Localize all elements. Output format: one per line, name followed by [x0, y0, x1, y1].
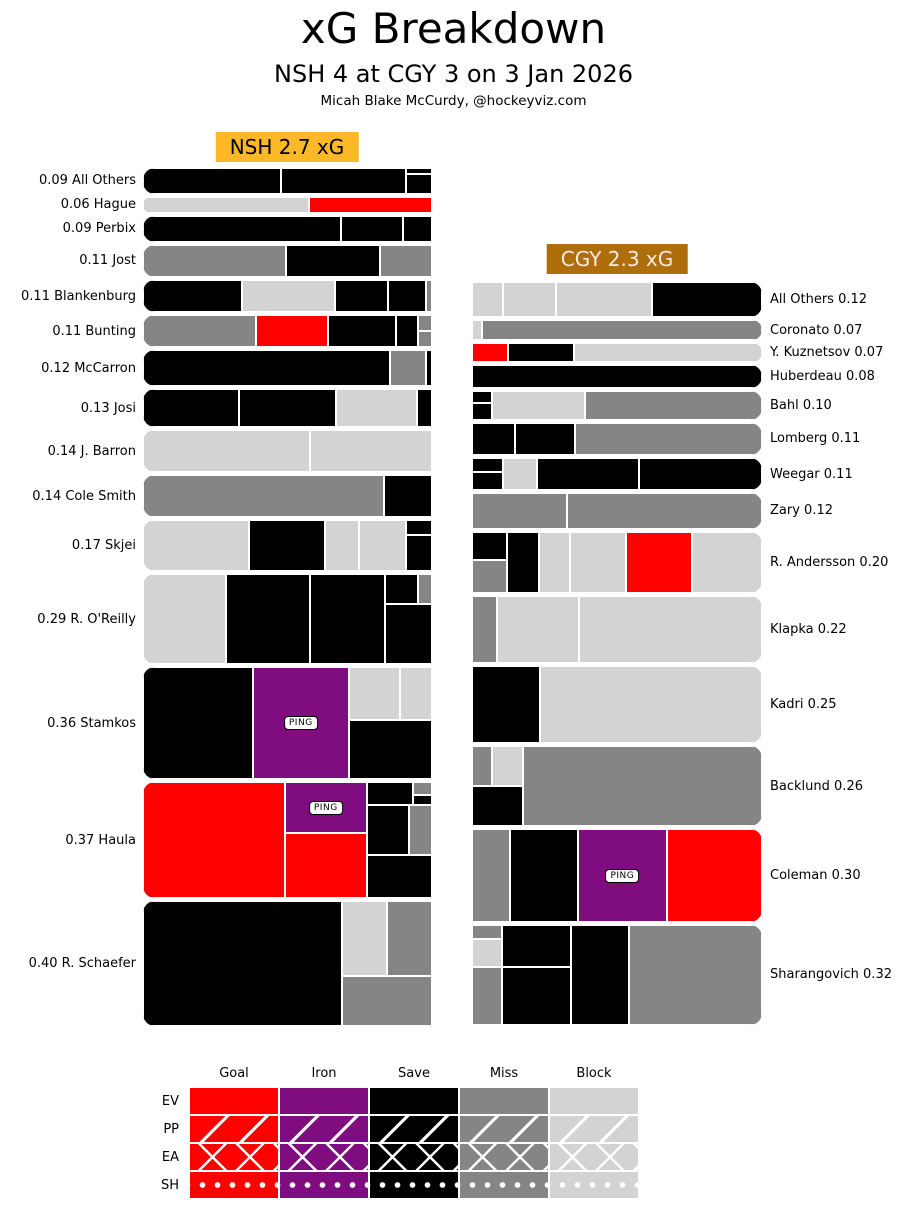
- player-shot-bar: [143, 315, 432, 347]
- shot-cell-save: [406, 520, 432, 535]
- player-label: 0.09 All Others: [0, 168, 136, 194]
- player-label: 0.09 Perbix: [0, 216, 136, 242]
- legend-column-label-miss: Miss: [460, 1060, 548, 1086]
- shot-cell-save: [571, 925, 629, 1024]
- player-row-haula: 0.37 HaulaPING: [143, 782, 432, 897]
- shot-cell-save: [384, 475, 432, 517]
- shot-cell-save: [385, 574, 418, 604]
- legend-swatch-ea-iron: [280, 1144, 368, 1170]
- player-row-cole-smith: 0.14 Cole Smith: [143, 475, 432, 517]
- legend-swatch-ev-iron: [280, 1088, 368, 1114]
- player-shot-bar: [472, 493, 762, 528]
- shot-cell-save: [508, 343, 573, 362]
- legend-swatch-ev-save: [370, 1088, 458, 1114]
- player-row-klapka: Klapka 0.22: [472, 596, 762, 663]
- legend-swatch-pp-block: [550, 1116, 638, 1142]
- legend-column-label-iron: Iron: [280, 1060, 368, 1086]
- shot-cell-goal: [472, 343, 508, 362]
- legend-swatch-pp-goal: [190, 1116, 278, 1142]
- shot-cell-block: [574, 343, 763, 362]
- player-row-bunting: 0.11 Bunting: [143, 315, 432, 347]
- player-label: Sharangovich 0.32: [770, 925, 907, 1024]
- player-row-r-andersson: R. Andersson 0.20: [472, 532, 762, 593]
- shot-cell-save: [281, 168, 406, 194]
- legend-swatch-ea-goal: [190, 1144, 278, 1170]
- player-row-j-barron: 0.14 J. Barron: [143, 430, 432, 472]
- player-shot-bar: [143, 280, 432, 312]
- shot-cell-block: [472, 320, 482, 339]
- shot-cell-save: [367, 855, 432, 898]
- shot-cell-miss: [567, 493, 762, 528]
- player-shot-bar: [472, 596, 762, 663]
- shot-cell-goal: [667, 829, 762, 922]
- shot-cell-block: [143, 197, 309, 213]
- player-row-skjei: 0.17 Skjei: [143, 520, 432, 571]
- player-label: Y. Kuznetsov 0.07: [770, 343, 907, 362]
- shot-cell-miss: [143, 245, 286, 277]
- shot-cell-save: [507, 532, 539, 593]
- player-row-coleman: Coleman 0.30PING: [472, 829, 762, 922]
- player-label: Backlund 0.26: [770, 746, 907, 826]
- player-shot-bar: PING: [472, 829, 762, 922]
- legend-swatch-ev-block: [550, 1088, 638, 1114]
- player-label: Coleman 0.30: [770, 829, 907, 922]
- shot-cell-save: [143, 350, 390, 385]
- shot-cell-block: [570, 532, 626, 593]
- player-shot-bar: [143, 168, 432, 194]
- shot-cell-save: [502, 925, 570, 967]
- cgy-team-header: CGY 2.3 xG: [547, 244, 688, 274]
- author-credit: Micah Blake McCurdy, @hockeyviz.com: [0, 93, 907, 109]
- player-shot-bar: [472, 925, 762, 1024]
- player-shot-bar: [472, 320, 762, 339]
- page-title: xG Breakdown: [0, 4, 907, 53]
- shot-cell-miss: [472, 560, 507, 592]
- shot-cell-save: [406, 535, 432, 571]
- shot-cell-goal: [309, 197, 432, 213]
- shot-cell-save: [472, 391, 492, 403]
- player-row-blankenburg: 0.11 Blankenburg: [143, 280, 432, 312]
- shot-cell-block: [242, 280, 335, 312]
- legend-swatch-sh-iron: [280, 1172, 368, 1198]
- shot-cell-save: [472, 365, 762, 388]
- legend-corner-spacer: [140, 1060, 188, 1086]
- player-shot-bar: [143, 520, 432, 571]
- shot-cell-save: [310, 574, 385, 664]
- shot-cell-miss: [390, 350, 426, 385]
- shot-cell-block: [540, 666, 762, 743]
- legend-column-label-save: Save: [370, 1060, 458, 1086]
- shot-cell-goal: [626, 532, 692, 593]
- legend-swatch-sh-goal: [190, 1172, 278, 1198]
- legend-swatch-sh-save: [370, 1172, 458, 1198]
- shot-cell-save: [249, 520, 325, 571]
- player-shot-bar: PING: [143, 782, 432, 897]
- shot-cell-miss: [380, 245, 432, 277]
- player-shot-bar: [143, 430, 432, 472]
- player-row-backlund: Backlund 0.26: [472, 746, 762, 826]
- player-row-perbix: 0.09 Perbix: [143, 216, 432, 242]
- shot-cell-block: [359, 520, 406, 571]
- shot-cell-save: [385, 604, 432, 664]
- shot-cell-save: [472, 403, 492, 420]
- shot-cell-block: [325, 520, 359, 571]
- shot-cell-save: [388, 280, 426, 312]
- player-shot-bar: [472, 666, 762, 743]
- shot-cell-block: [692, 532, 762, 593]
- shot-cell-miss: [472, 925, 502, 939]
- shot-cell-miss: [472, 829, 510, 922]
- player-label: 0.29 R. O'Reilly: [0, 574, 136, 664]
- shot-cell-save: [472, 472, 503, 490]
- shot-cell-save: [143, 901, 342, 1026]
- xg-breakdown-figure: xG Breakdown NSH 4 at CGY 3 on 3 Jan 202…: [0, 0, 907, 1207]
- player-shot-bar: [143, 901, 432, 1026]
- shot-cell-save: [472, 532, 507, 561]
- shot-cell-save: [143, 216, 341, 242]
- shot-cell-block: [539, 532, 570, 593]
- ping-badge: PING: [284, 716, 318, 730]
- player-label: 0.17 Skjei: [0, 520, 136, 571]
- player-shot-bar: PING: [143, 667, 432, 779]
- shot-cell-block: [310, 430, 432, 472]
- player-label: Klapka 0.22: [770, 596, 907, 663]
- shot-cell-miss: [413, 782, 432, 795]
- shot-cell-save: [335, 280, 388, 312]
- player-shot-bar: [143, 574, 432, 664]
- player-label: 0.37 Haula: [0, 782, 136, 897]
- shot-cell-goal: [256, 315, 328, 347]
- player-label: 0.06 Hague: [0, 197, 136, 213]
- player-label: 0.36 Stamkos: [0, 667, 136, 779]
- legend-swatch-pp-miss: [460, 1116, 548, 1142]
- shot-cell-block: [497, 596, 579, 663]
- shot-cell-miss: [523, 746, 762, 826]
- legend-swatch-ev-miss: [460, 1088, 548, 1114]
- shot-cell-save: [472, 786, 523, 826]
- shot-cell-miss: [472, 493, 567, 528]
- player-shot-bar: [143, 350, 432, 385]
- legend-swatch-ea-miss: [460, 1144, 548, 1170]
- legend-row-label-sh: SH: [140, 1172, 188, 1198]
- player-label: 0.11 Jost: [0, 245, 136, 277]
- player-row-weegar: Weegar 0.11: [472, 458, 762, 490]
- shot-cell-iron: PING: [253, 667, 349, 779]
- shot-cell-block: [492, 746, 522, 786]
- shot-cell-save: [472, 666, 540, 743]
- player-row-bahl: Bahl 0.10: [472, 391, 762, 420]
- player-shot-bar: [472, 391, 762, 420]
- shot-cell-save: [417, 389, 432, 428]
- legend-row-label-ea: EA: [140, 1144, 188, 1170]
- shot-cell-save: [639, 458, 762, 490]
- shot-cell-block: [400, 667, 432, 720]
- shot-cell-miss: [418, 574, 432, 604]
- shot-cell-block: [143, 574, 226, 664]
- player-label: Huberdeau 0.08: [770, 365, 907, 388]
- player-row-y-kuznetsov: Y. Kuznetsov 0.07: [472, 343, 762, 362]
- shot-cell-block: [472, 282, 503, 317]
- player-label: Coronato 0.07: [770, 320, 907, 339]
- player-label: 0.14 Cole Smith: [0, 475, 136, 517]
- shot-cell-save: [143, 389, 239, 428]
- shot-cell-save: [652, 282, 762, 317]
- shot-cell-miss: [472, 596, 497, 663]
- shot-cell-block: [342, 901, 387, 976]
- shot-cell-miss: [629, 925, 762, 1024]
- player-label: R. Andersson 0.20: [770, 532, 907, 593]
- player-shot-bar: [472, 746, 762, 826]
- shot-cell-block: [349, 667, 400, 720]
- legend-row-label-ev: EV: [140, 1088, 188, 1114]
- player-row-hague: 0.06 Hague: [143, 197, 432, 213]
- shot-cell-iron: PING: [578, 829, 667, 922]
- shot-cell-block: [579, 596, 762, 663]
- shot-cell-save: [472, 458, 503, 472]
- shot-cell-miss: [426, 280, 432, 312]
- shot-cell-save: [286, 245, 380, 277]
- legend-swatch-pp-iron: [280, 1116, 368, 1142]
- shot-cell-iron: PING: [285, 782, 367, 833]
- shot-cell-block: [492, 391, 585, 420]
- shot-cell-save: [510, 829, 578, 922]
- player-shot-bar: [143, 245, 432, 277]
- shot-cell-save: [403, 216, 432, 242]
- legend-column-label-goal: Goal: [190, 1060, 278, 1086]
- player-row-josi: 0.13 Josi: [143, 389, 432, 428]
- legend-swatch-ea-save: [370, 1144, 458, 1170]
- shot-cell-miss: [418, 315, 432, 330]
- player-row-r-o-reilly: 0.29 R. O'Reilly: [143, 574, 432, 664]
- player-shot-bar: [143, 389, 432, 428]
- player-row-zary: Zary 0.12: [472, 493, 762, 528]
- player-shot-bar: [143, 475, 432, 517]
- shot-cell-save: [515, 423, 575, 455]
- player-label: 0.40 R. Schaefer: [0, 901, 136, 1026]
- player-label: All Others 0.12: [770, 282, 907, 317]
- player-shot-bar: [472, 458, 762, 490]
- shot-cell-save: [502, 967, 570, 1025]
- shot-cell-save: [537, 458, 639, 490]
- nsh-team-header: NSH 2.7 xG: [216, 132, 359, 162]
- shot-cell-goal: [143, 782, 285, 897]
- player-label: Lomberg 0.11: [770, 423, 907, 455]
- shot-cell-save: [341, 216, 403, 242]
- player-row-sharangovich: Sharangovich 0.32: [472, 925, 762, 1024]
- shot-cell-save: [396, 315, 418, 347]
- shot-cell-block: [503, 458, 537, 490]
- player-shot-bar: [472, 282, 762, 317]
- shot-cell-miss: [409, 805, 432, 855]
- shot-cell-block: [143, 520, 249, 571]
- player-shot-bar: [143, 197, 432, 213]
- player-row-kadri: Kadri 0.25: [472, 666, 762, 743]
- player-row-stamkos: 0.36 StamkosPING: [143, 667, 432, 779]
- shot-cell-save: [349, 720, 432, 779]
- player-row-mccarron: 0.12 McCarron: [143, 350, 432, 385]
- shot-cell-miss: [472, 746, 492, 786]
- shot-cell-save: [406, 174, 432, 194]
- player-row-lomberg: Lomberg 0.11: [472, 423, 762, 455]
- shot-cell-save: [367, 782, 413, 805]
- shot-cell-miss: [387, 901, 432, 976]
- legend-row-label-pp: PP: [140, 1116, 188, 1142]
- player-row-r-schaefer: 0.40 R. Schaefer: [143, 901, 432, 1026]
- player-row-jost: 0.11 Jost: [143, 245, 432, 277]
- player-label: Bahl 0.10: [770, 391, 907, 420]
- legend-swatch-sh-miss: [460, 1172, 548, 1198]
- legend: GoalIronSaveMissBlockEVPPEASH: [140, 1060, 638, 1198]
- shot-cell-block: [143, 430, 310, 472]
- shot-cell-save: [239, 389, 336, 428]
- legend-swatch-pp-save: [370, 1116, 458, 1142]
- shot-cell-miss: [143, 475, 384, 517]
- player-shot-bar: [472, 423, 762, 455]
- player-shot-bar: [472, 365, 762, 388]
- shot-cell-block: [472, 939, 502, 967]
- player-row-all-others: All Others 0.12: [472, 282, 762, 317]
- shot-cell-miss: [575, 423, 762, 455]
- player-label: 0.13 Josi: [0, 389, 136, 428]
- shot-cell-save: [143, 667, 253, 779]
- shot-cell-miss: [482, 320, 762, 339]
- player-shot-bar: [472, 532, 762, 593]
- player-row-huberdeau: Huberdeau 0.08: [472, 365, 762, 388]
- legend-swatch-sh-block: [550, 1172, 638, 1198]
- shot-cell-save: [143, 280, 242, 312]
- shot-cell-miss: [585, 391, 762, 420]
- legend-column-label-block: Block: [550, 1060, 638, 1086]
- player-label: 0.11 Bunting: [0, 315, 136, 347]
- shot-cell-block: [336, 389, 417, 428]
- player-shot-bar: [472, 343, 762, 362]
- game-subtitle: NSH 4 at CGY 3 on 3 Jan 2026: [0, 60, 907, 88]
- player-shot-bar: [143, 216, 432, 242]
- shot-cell-save: [472, 423, 515, 455]
- player-label: 0.12 McCarron: [0, 350, 136, 385]
- shot-cell-block: [556, 282, 652, 317]
- shot-cell-save: [226, 574, 310, 664]
- player-label: Weegar 0.11: [770, 458, 907, 490]
- shot-cell-save: [426, 350, 432, 385]
- shot-cell-miss: [143, 315, 256, 347]
- shot-cell-save: [413, 795, 432, 805]
- shot-cell-save: [328, 315, 396, 347]
- player-row-all-others: 0.09 All Others: [143, 168, 432, 194]
- shot-cell-block: [503, 282, 556, 317]
- ping-badge: PING: [605, 869, 639, 883]
- legend-swatch-ev-goal: [190, 1088, 278, 1114]
- shot-cell-save: [143, 168, 281, 194]
- player-row-coronato: Coronato 0.07: [472, 320, 762, 339]
- player-label: 0.11 Blankenburg: [0, 280, 136, 312]
- shot-cell-miss: [342, 976, 432, 1026]
- player-label: Zary 0.12: [770, 493, 907, 528]
- shot-cell-save: [367, 805, 409, 855]
- shot-cell-miss: [472, 967, 502, 1025]
- player-label: Kadri 0.25: [770, 666, 907, 743]
- shot-cell-goal: [285, 833, 367, 898]
- legend-swatch-ea-block: [550, 1144, 638, 1170]
- player-label: 0.14 J. Barron: [0, 430, 136, 472]
- ping-badge: PING: [309, 801, 343, 815]
- shot-cell-miss: [418, 331, 432, 348]
